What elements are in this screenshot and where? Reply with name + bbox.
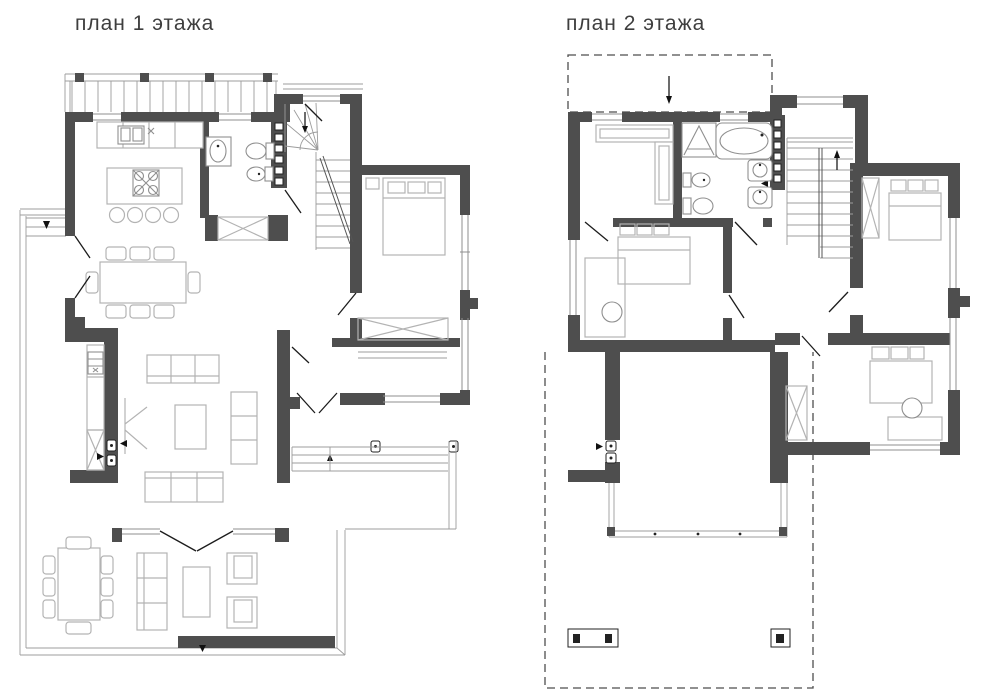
kitchen	[97, 122, 203, 223]
bedroom-right	[829, 178, 941, 312]
staircase-floor1	[285, 103, 353, 250]
roof-outline-top	[568, 55, 772, 112]
wardrobe-hall	[218, 217, 268, 240]
dining-table	[86, 247, 200, 318]
floor2-plan	[545, 55, 970, 688]
bathroom-floor2	[682, 123, 772, 214]
staircase-floor2	[787, 138, 853, 258]
floor-plan-sheet: { "floor1": { "title": "план 1 этажа" },…	[0, 0, 990, 690]
floor-plans-drawing	[0, 0, 990, 690]
bedroom-bottom-right	[735, 222, 942, 440]
floor1-plan	[20, 73, 478, 655]
terrace	[43, 537, 257, 634]
balcony	[596, 441, 787, 537]
porch-deck	[65, 73, 363, 112]
rear-steps	[292, 441, 456, 529]
